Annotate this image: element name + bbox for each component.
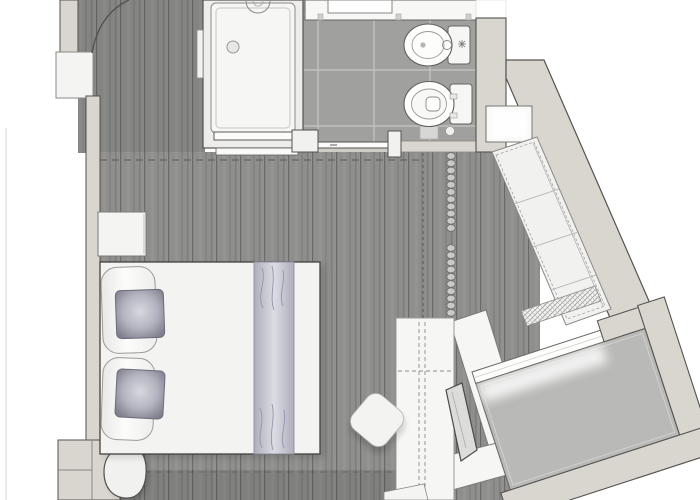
nightstand bbox=[98, 212, 146, 256]
wall-gap bbox=[476, 0, 506, 18]
shower-glass-door bbox=[214, 132, 296, 140]
bed-runner bbox=[254, 262, 294, 454]
flush-control bbox=[446, 127, 455, 136]
toilet-mat bbox=[420, 126, 438, 139]
sliding-door-panel bbox=[318, 142, 388, 148]
sink-basin bbox=[328, 0, 392, 13]
faucet-mark bbox=[458, 40, 466, 48]
toilet-trap bbox=[426, 97, 440, 111]
double-bed bbox=[100, 262, 325, 458]
wall-niche bbox=[56, 52, 93, 98]
floor-plan bbox=[0, 0, 700, 500]
floor-plan-drawing bbox=[0, 0, 700, 500]
shower-enclosure bbox=[197, 0, 303, 155]
shower-drain bbox=[227, 41, 239, 53]
curtain-divider bbox=[447, 153, 455, 232]
towel-rail bbox=[197, 30, 203, 78]
bidet bbox=[404, 24, 470, 66]
vanity-sink bbox=[305, 0, 477, 20]
niche-shelf bbox=[486, 106, 532, 142]
wardrobe bbox=[396, 318, 454, 500]
shower-door-track bbox=[216, 148, 298, 155]
